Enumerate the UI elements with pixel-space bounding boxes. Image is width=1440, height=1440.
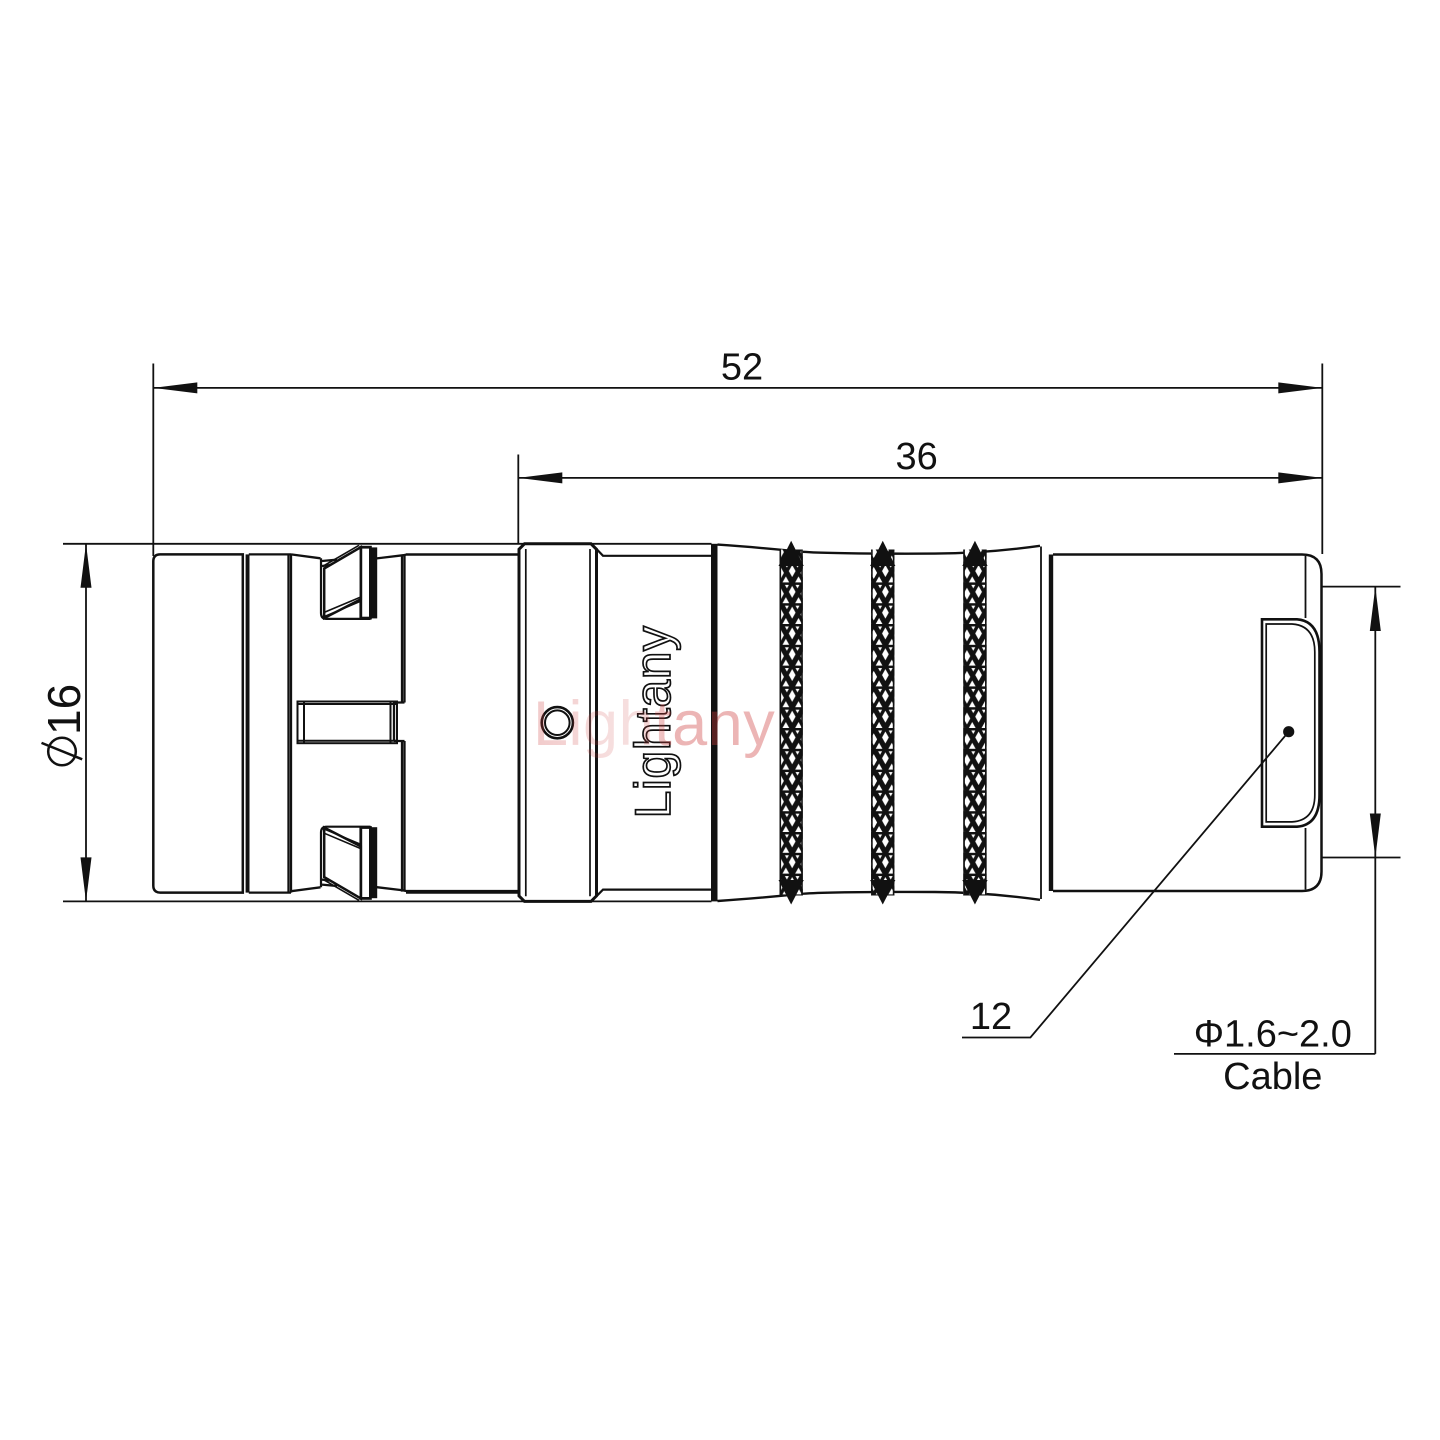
svg-text:Cable: Cable: [1223, 1056, 1322, 1098]
svg-text:36: 36: [895, 436, 937, 478]
svg-text:Lightany: Lightany: [533, 689, 775, 759]
svg-text:16: 16: [38, 684, 90, 735]
svg-text:52: 52: [721, 347, 763, 389]
svg-text:Φ1.6~2.0: Φ1.6~2.0: [1194, 1014, 1352, 1056]
svg-text:12: 12: [970, 996, 1012, 1038]
